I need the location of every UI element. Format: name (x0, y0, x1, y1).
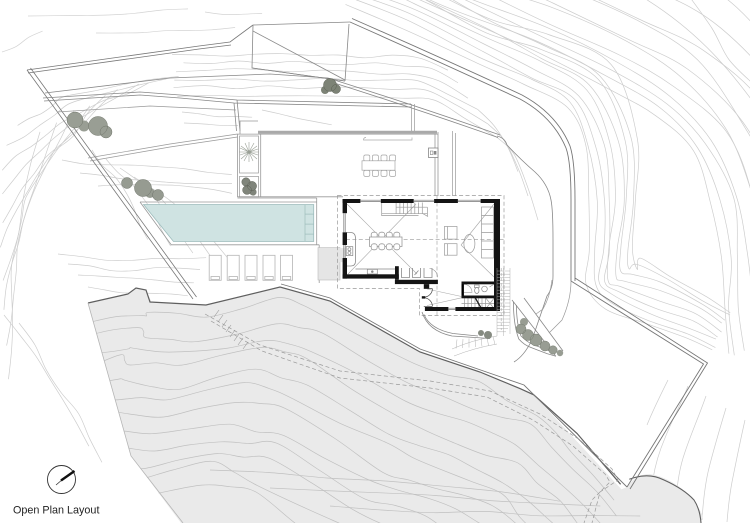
svg-text:Open Plan Layout: Open Plan Layout (13, 505, 99, 517)
